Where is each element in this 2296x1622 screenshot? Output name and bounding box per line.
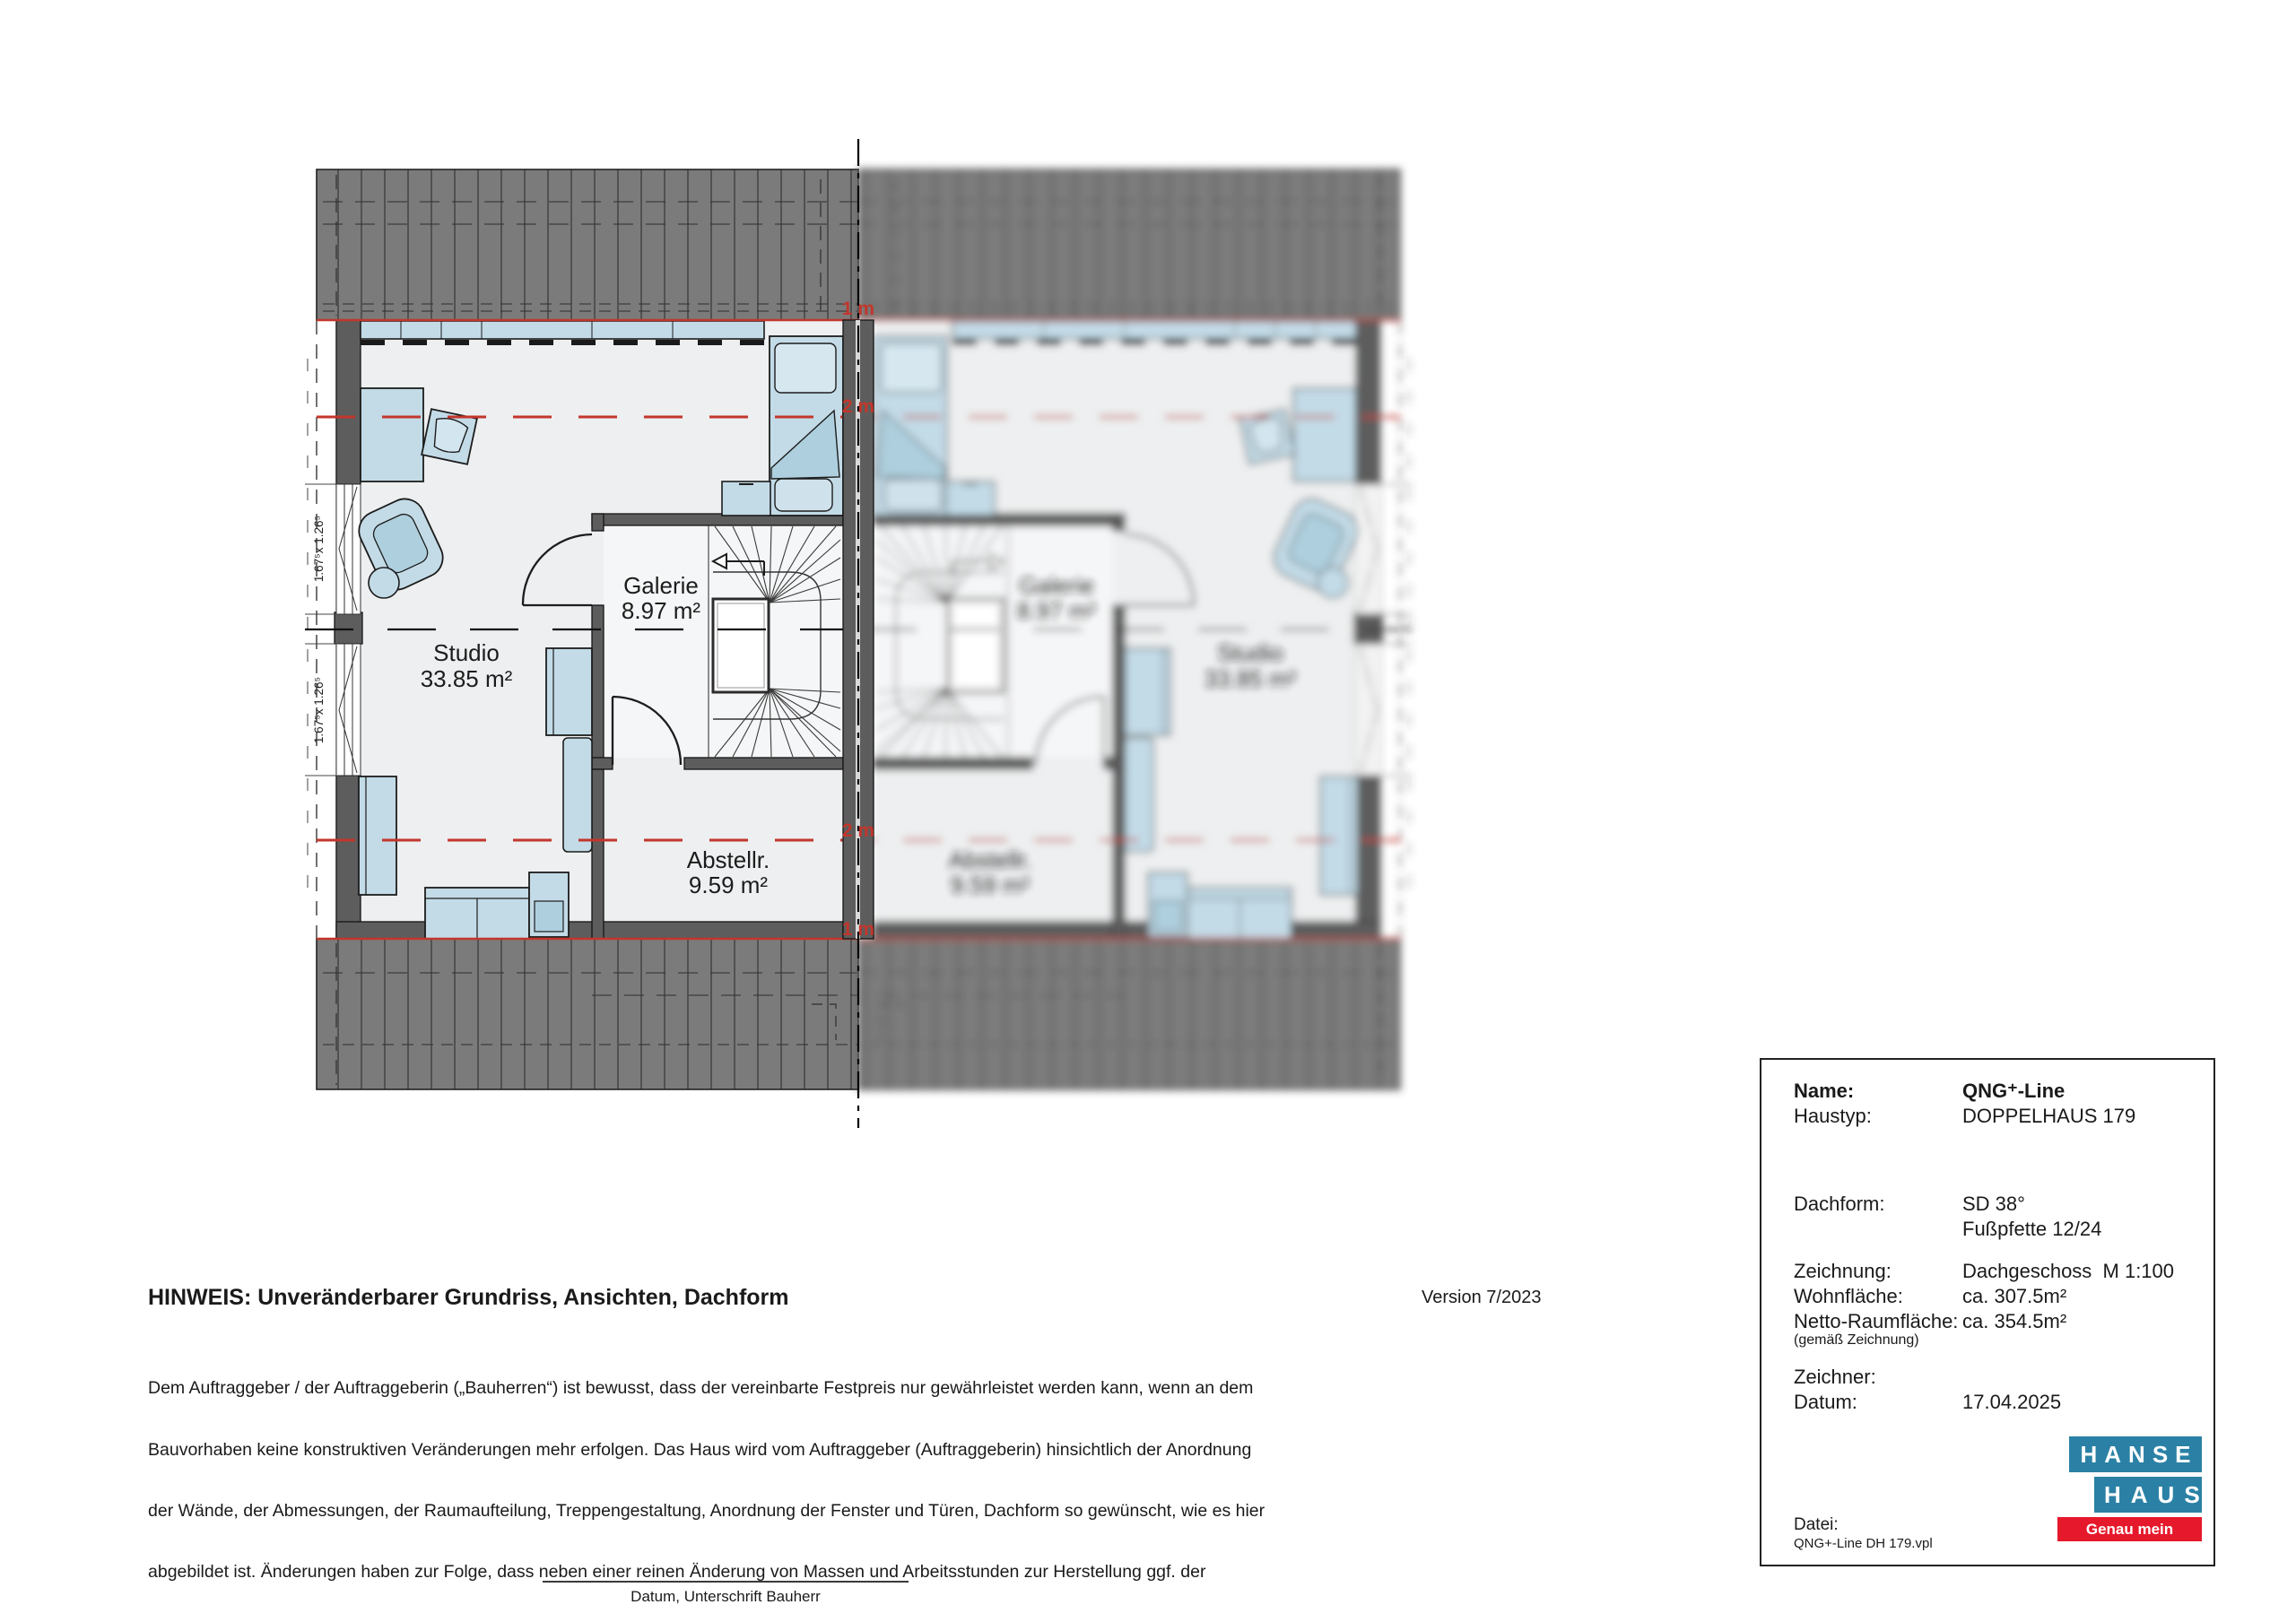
drawing-sheet: 1 m 2 m 2 m 1 m Studio 33.85 m² Galerie … <box>0 0 2296 1622</box>
netto-value: ca. 354.5m² <box>1962 1310 2066 1333</box>
galerie-area: 8.97 m² <box>622 597 700 624</box>
datei-value: QNG+-Line DH 179.vpl <box>1794 1536 1933 1551</box>
exterior-wall-left-top <box>336 320 361 484</box>
abstellraum-area-right: 9.59 m² <box>951 872 1030 898</box>
exterior-wall-left-bottom <box>336 776 361 939</box>
hanse-haus-logo-tagline: Genau mein Zuhause. <box>2057 1517 2202 1541</box>
left-dwelling-unit <box>305 169 858 1089</box>
sideboard <box>359 776 396 895</box>
abstellraum-label-right: Abstellr. <box>949 846 1032 873</box>
lounge-chair <box>529 872 569 937</box>
desk <box>361 388 423 481</box>
studio-label-right: Studio <box>1217 639 1283 666</box>
window-dimension-ticks <box>305 359 338 897</box>
datum-label: Datum: <box>1794 1391 1857 1414</box>
hinweis-line: der Wände, der Abmessungen, der Raumauft… <box>148 1501 1265 1522</box>
hanse-haus-logo-line2: HAUS <box>2094 1477 2202 1513</box>
abstellraum-wall-west <box>592 769 604 939</box>
side-table <box>369 568 399 598</box>
marker-1m-bottom: 1 m <box>842 919 874 940</box>
zeichnung-label: Zeichnung: <box>1794 1260 1892 1283</box>
exterior-wall-bottom <box>336 922 843 939</box>
studio-area-right: 33.85 m² <box>1205 665 1297 692</box>
wohnflaeche-value: ca. 307.5m² <box>1962 1285 2066 1308</box>
marker-2m-top: 2 m <box>842 396 874 417</box>
galerie-wall-west-stub <box>592 514 604 531</box>
nightstand <box>722 481 770 516</box>
roof-surface-top <box>317 169 858 320</box>
galerie-wall-south-right <box>684 758 843 769</box>
signature-label: Datum, Unterschrift Bauherr <box>543 1588 909 1606</box>
haustyp-value: DOPPELHAUS 179 <box>1962 1105 2135 1128</box>
galerie-label-right: Galerie <box>1019 572 1094 599</box>
datei-label: Datei: <box>1794 1515 1839 1535</box>
galerie-label: Galerie <box>623 572 699 599</box>
marker-2m-bottom: 2 m <box>842 820 874 841</box>
netto-label: Netto-Raumfläche: <box>1794 1310 1958 1333</box>
name-value: QNG⁺-Line <box>1962 1080 2065 1103</box>
window-dimension-bottom: 1.67⁵x 1.26⁵ <box>312 677 326 743</box>
hinweis-title: HINWEIS: Unveränderbarer Grundriss, Ansi… <box>148 1285 789 1311</box>
galerie-wall-south-left <box>592 758 613 769</box>
hinweis-line: abgebildet ist. Änderungen haben zur Fol… <box>148 1562 1265 1583</box>
zeichnung-value: Dachgeschoss M 1:100 <box>1962 1260 2174 1283</box>
abstellraum-label: Abstellr. <box>687 846 770 873</box>
exterior-wall-left-pier <box>335 612 362 644</box>
hinweis-line: Dem Auftraggeber / der Auftraggeberin („… <box>148 1378 1265 1399</box>
zeichner-label: Zeichner: <box>1794 1366 1876 1389</box>
signature-line <box>543 1581 909 1583</box>
galerie-area-right: 8.97 m² <box>1017 597 1096 624</box>
window-dimension-top: 1.67⁵x 1.26⁵ <box>312 516 326 582</box>
haustyp-label: Haustyp: <box>1794 1105 1872 1128</box>
dachform-value2: Fußpfette 12/24 <box>1962 1218 2101 1241</box>
roof-surface-bottom <box>317 939 858 1089</box>
name-label: Name: <box>1794 1080 1854 1103</box>
right-dwelling-unit-mirrored <box>858 169 1412 1089</box>
dachform-value: SD 38° <box>1962 1193 2025 1216</box>
hanse-haus-logo-line1: HANSE <box>2069 1436 2202 1472</box>
sofa <box>425 888 529 939</box>
studio-area: 33.85 m² <box>421 665 513 692</box>
netto-note: (gemäß Zeichnung) <box>1794 1332 1919 1349</box>
dachform-label: Dachform: <box>1794 1193 1884 1216</box>
abstellraum-area: 9.59 m² <box>689 872 768 898</box>
stair-void <box>713 599 769 692</box>
bed <box>770 336 843 516</box>
marker-1m-top: 1 m <box>842 299 874 319</box>
window-bottom <box>336 644 361 776</box>
version-label: Version 7/2023 <box>1422 1288 1541 1308</box>
datum-value: 17.04.2025 <box>1962 1391 2061 1414</box>
wohnflaeche-label: Wohnfläche: <box>1794 1285 1903 1308</box>
title-block: Name: QNG⁺-Line Haustyp: DOPPELHAUS 179 … <box>1760 1058 2215 1566</box>
window-top <box>336 484 361 614</box>
hinweis-body: Dem Auftraggeber / der Auftraggeberin („… <box>148 1338 1265 1622</box>
cabinet-row-top <box>361 321 764 339</box>
studio-label: Studio <box>433 639 500 666</box>
hinweis-line: Bauvorhaben keine konstruktiven Veränder… <box>148 1440 1265 1461</box>
